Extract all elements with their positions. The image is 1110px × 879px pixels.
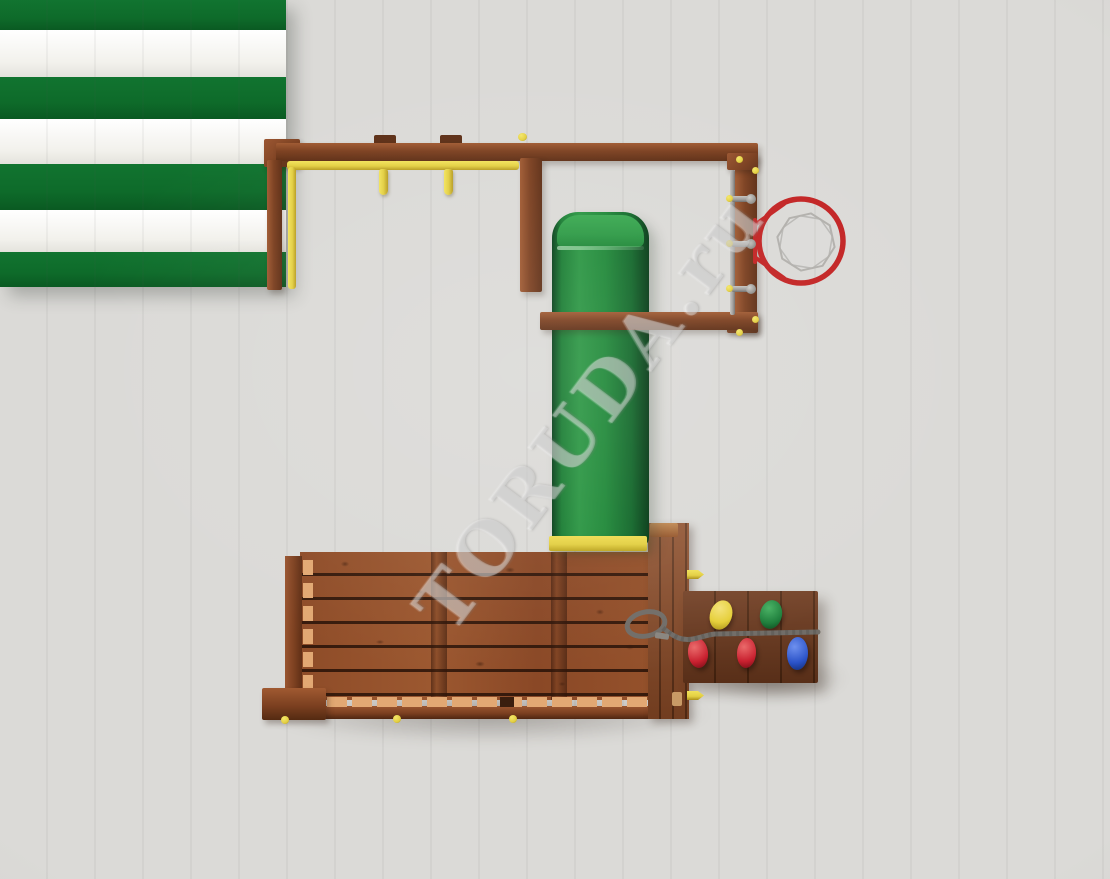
rung-bolt xyxy=(746,194,756,204)
deck-joist xyxy=(431,552,447,700)
deck-joist xyxy=(551,552,567,700)
deck-baluster-column xyxy=(303,560,313,696)
canopy-stripe-white xyxy=(0,30,286,77)
rung-cap-dot xyxy=(726,240,733,247)
frame-middle-post xyxy=(520,158,542,292)
swing-top-beam xyxy=(276,143,758,161)
hoop-net xyxy=(777,213,834,270)
post-cap-dot xyxy=(736,329,743,336)
slide xyxy=(552,212,649,546)
deck-wall-cap xyxy=(650,523,678,537)
playground-set-top-view: TORUDA.ru xyxy=(0,0,1110,879)
post-cap-dot xyxy=(518,133,527,141)
post-cap-dot xyxy=(736,156,743,163)
monkey-frame-bottom-beam xyxy=(540,312,758,330)
swing-hanger xyxy=(444,169,453,195)
canopy-stripe-green xyxy=(0,0,286,30)
deck-side-step xyxy=(262,688,326,720)
post-cap-dot xyxy=(281,716,289,724)
slide-hood-lip xyxy=(557,246,644,250)
slide-base-strip xyxy=(549,536,647,551)
rung-bolt xyxy=(746,284,756,294)
deck-left-rim xyxy=(285,556,302,708)
rung-cap-dot xyxy=(726,285,733,292)
post-cap-dot xyxy=(752,167,759,174)
yellow-rail-vertical xyxy=(288,167,296,289)
canopy-stripe-green xyxy=(0,164,286,210)
slide-hood xyxy=(557,215,644,247)
post-cap-dot xyxy=(509,715,517,723)
post-cap-dot xyxy=(393,715,401,723)
canopy-stripe-green xyxy=(0,77,286,119)
basketball-hoop xyxy=(744,190,860,296)
rung-bolt xyxy=(746,239,756,249)
canopy-roof xyxy=(0,0,286,287)
canopy-stripe-white xyxy=(0,210,286,252)
rung-cap-dot xyxy=(726,195,733,202)
deck-baluster-gap xyxy=(500,697,514,707)
yellow-rail-horizontal xyxy=(287,161,519,170)
deck-bottom-rim xyxy=(285,706,689,719)
deck-baluster-row xyxy=(302,697,650,707)
yellow-peg xyxy=(687,570,704,579)
frame-left-post xyxy=(267,160,282,290)
deck-planks xyxy=(300,552,648,700)
swing-hanger xyxy=(379,169,388,195)
climbing-rope xyxy=(605,595,830,655)
canopy-stripe-white xyxy=(0,119,286,164)
canopy-stripe-green xyxy=(0,252,286,287)
post-cap-dot xyxy=(752,316,759,323)
deck-wall-cap xyxy=(672,692,682,706)
